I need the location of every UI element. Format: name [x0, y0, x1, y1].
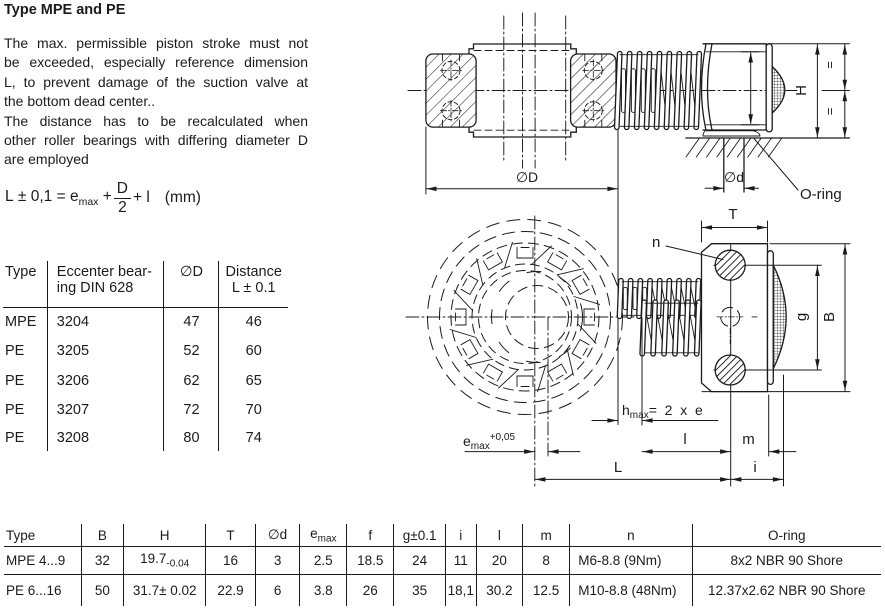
svg-text:∅D: ∅D — [516, 169, 538, 185]
svg-text:B: B — [821, 312, 838, 322]
svg-text:T: T — [728, 206, 737, 223]
svg-text:∅d: ∅d — [724, 169, 744, 185]
svg-text:n: n — [652, 234, 660, 251]
svg-text:l: l — [683, 431, 686, 448]
svg-text:H: H — [793, 85, 810, 96]
svg-text:=: = — [822, 61, 837, 69]
svg-text:i: i — [753, 459, 756, 476]
svg-text:m: m — [742, 431, 755, 448]
svg-text:L: L — [614, 459, 622, 476]
svg-text:=: = — [822, 108, 837, 116]
svg-text:g: g — [793, 313, 810, 321]
svg-text:hmax= 2 x e: hmax= 2 x e — [622, 402, 703, 421]
svg-text:O-ring: O-ring — [800, 186, 842, 203]
svg-text:emax+0,05: emax+0,05 — [463, 432, 515, 452]
